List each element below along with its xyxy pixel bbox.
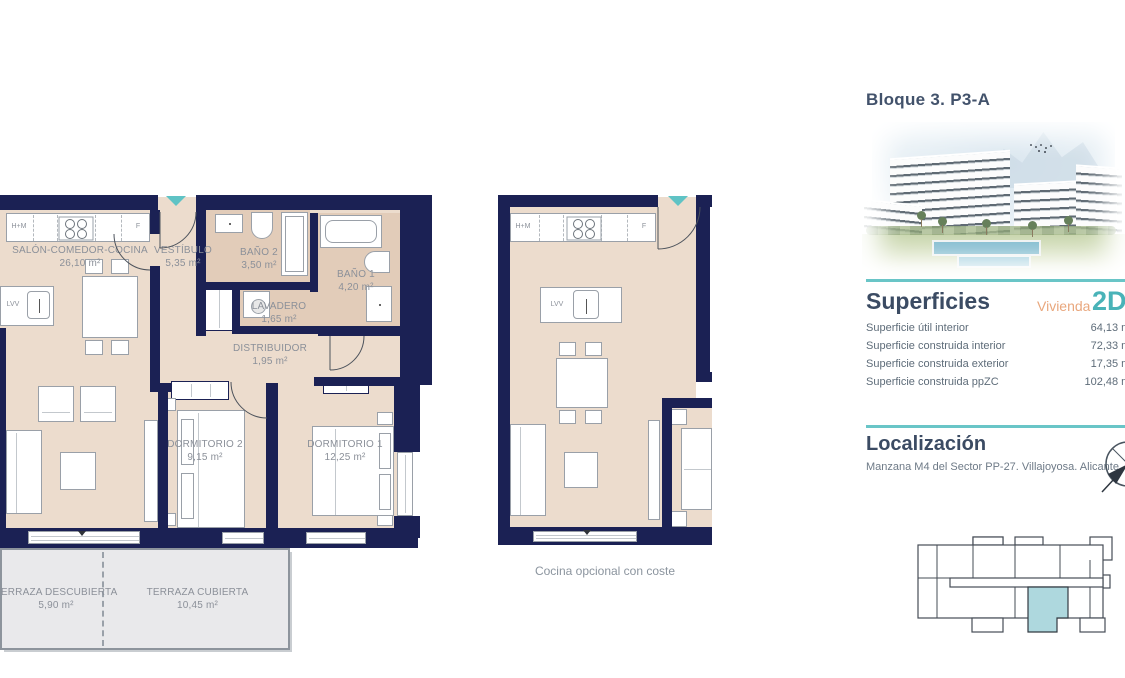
tv-unit bbox=[144, 420, 158, 522]
superficie-label: Superficie construida interior bbox=[866, 340, 1005, 352]
wall bbox=[158, 383, 172, 392]
superficie-label: Superficie útil interior bbox=[866, 322, 969, 334]
room-area: 26,10 m² bbox=[8, 257, 152, 270]
superficie-value: 72,33 m² bbox=[1091, 340, 1125, 352]
basin-drain bbox=[229, 223, 231, 225]
room-area: 1,95 m² bbox=[218, 355, 322, 368]
room-area: 9,15 m² bbox=[162, 451, 248, 464]
wardrobe bbox=[171, 381, 229, 400]
superficie-label: Superficie construida ppZC bbox=[866, 376, 999, 388]
superficie-value: 64,13 m² bbox=[1091, 322, 1125, 334]
pillow bbox=[181, 473, 194, 519]
wardrobe-line bbox=[191, 384, 192, 397]
door-marker-icon bbox=[583, 530, 591, 535]
room-name: DISTRIBUIDOR bbox=[218, 342, 322, 355]
window bbox=[306, 532, 366, 544]
island-label-lvv: LVV bbox=[546, 301, 568, 308]
room-name: BAÑO 1 bbox=[322, 268, 390, 281]
kitchen-label-f: F bbox=[636, 223, 652, 230]
wall bbox=[266, 383, 278, 528]
bed-fold-line bbox=[198, 413, 199, 527]
wall bbox=[662, 398, 712, 408]
bed-fold-line bbox=[684, 469, 711, 470]
superficies-row: Superficie construida ppZC102,48 m² bbox=[866, 376, 1125, 388]
pillow bbox=[379, 474, 391, 510]
coffee-table bbox=[564, 452, 598, 488]
wall bbox=[150, 210, 160, 234]
glass-line bbox=[536, 538, 636, 539]
glass-line bbox=[536, 535, 636, 536]
wall bbox=[498, 195, 658, 207]
chair bbox=[559, 342, 576, 356]
address-text: Manzana M4 del Sector PP-27. Villajoyosa… bbox=[866, 461, 1119, 473]
section-divider bbox=[866, 279, 1125, 282]
wall bbox=[232, 326, 320, 334]
site-plan bbox=[913, 535, 1125, 647]
room-label-terraza-cubierta: TERRAZA CUBIERTA10,45 m² bbox=[135, 586, 260, 612]
toilet-icon bbox=[251, 212, 273, 239]
building-rendering bbox=[862, 116, 1125, 278]
window bbox=[397, 452, 413, 516]
room-label-vestibulo: VESTÍBULO5,35 m² bbox=[147, 244, 219, 270]
room-label-dormitorio1: DORMITORIO 112,25 m² bbox=[300, 438, 390, 464]
superficie-value: 102,48 m² bbox=[1084, 376, 1125, 388]
wall bbox=[196, 210, 206, 336]
counter-divider bbox=[33, 215, 34, 241]
room-label-bano2: BAÑO 23,50 m² bbox=[224, 246, 294, 272]
bathtub-inner bbox=[325, 220, 377, 243]
kitchen-label-f: F bbox=[130, 223, 146, 230]
room-name: SALÓN-COMEDOR-COCINA bbox=[8, 244, 152, 257]
wall bbox=[314, 377, 402, 386]
window-line bbox=[405, 455, 406, 513]
superficie-label: Superficie construida exterior bbox=[866, 358, 1008, 370]
room-label-distribuidor: DISTRIBUIDOR1,95 m² bbox=[218, 342, 322, 368]
armchair bbox=[80, 386, 116, 422]
counter-divider bbox=[627, 215, 628, 241]
closet bbox=[205, 284, 234, 331]
wall bbox=[400, 210, 432, 385]
chair bbox=[85, 340, 103, 355]
sink-tap bbox=[39, 299, 40, 313]
cooktop-icon bbox=[58, 216, 94, 241]
room-area: 1,65 m² bbox=[240, 313, 318, 326]
wall bbox=[696, 372, 712, 382]
entry-arrow-icon bbox=[668, 196, 688, 206]
tv-unit bbox=[648, 420, 660, 520]
localizacion-heading: Localización bbox=[866, 433, 986, 456]
superficies-heading: Superficies bbox=[866, 288, 990, 315]
wall bbox=[662, 408, 672, 529]
counter-divider bbox=[563, 215, 564, 241]
sink-icon bbox=[27, 291, 50, 319]
room-area: 5,35 m² bbox=[147, 257, 219, 270]
counter-divider bbox=[539, 215, 540, 241]
wall bbox=[318, 326, 402, 336]
superficies-row: Superficie construida interior72,33 m² bbox=[866, 340, 1125, 352]
room-name: BAÑO 2 bbox=[224, 246, 294, 259]
vivienda-type: 2D bbox=[1092, 286, 1125, 317]
superficies-row: Superficie construida exterior17,35 m² bbox=[866, 358, 1125, 370]
room-label-salon: SALÓN-COMEDOR-COCINA26,10 m² bbox=[8, 244, 152, 270]
wardrobe-line bbox=[210, 384, 211, 397]
chair bbox=[111, 340, 129, 355]
wall bbox=[394, 385, 420, 452]
wall bbox=[696, 195, 712, 207]
watercolor-fade bbox=[862, 116, 1125, 278]
dining-table bbox=[82, 276, 138, 338]
section-divider bbox=[866, 425, 1125, 428]
wall bbox=[696, 207, 710, 372]
wall bbox=[0, 195, 158, 210]
vivienda-label: Vivienda bbox=[1037, 298, 1090, 314]
room-name: VESTÍBULO bbox=[147, 244, 219, 257]
chair bbox=[559, 410, 576, 424]
block-title: Bloque 3. P3-A bbox=[866, 90, 990, 110]
wall bbox=[196, 195, 432, 210]
wall bbox=[498, 195, 510, 545]
room-label-terraza-descubierta: TERRAZA DESCUBIERTA5,90 m² bbox=[0, 586, 126, 612]
glass-line bbox=[309, 538, 365, 539]
glass-line bbox=[225, 538, 263, 539]
room-name: LAVADERO bbox=[240, 300, 318, 313]
room-area: 12,25 m² bbox=[300, 451, 390, 464]
compass-icon bbox=[1096, 436, 1125, 498]
highlighted-unit bbox=[1028, 587, 1068, 632]
kitchen-label-hm: H+M bbox=[510, 223, 536, 230]
kitchen-label-hm: H+M bbox=[6, 223, 32, 230]
room-label-bano1: BAÑO 14,20 m² bbox=[322, 268, 390, 294]
dining-table bbox=[556, 358, 608, 408]
basin-drain bbox=[379, 304, 381, 306]
sofa-line bbox=[520, 427, 521, 515]
sink-icon bbox=[573, 290, 599, 319]
entry-arrow-icon bbox=[166, 196, 186, 206]
washbasin-icon bbox=[215, 214, 243, 233]
sink-tap bbox=[586, 299, 587, 314]
cooktop-icon bbox=[566, 216, 602, 241]
armchair-line bbox=[42, 412, 70, 413]
armchair bbox=[38, 386, 74, 422]
room-area: 3,50 m² bbox=[224, 259, 294, 272]
plan-caption: Cocina opcional con coste bbox=[505, 564, 705, 578]
nightstand bbox=[377, 412, 393, 425]
bathtub-icon bbox=[320, 215, 382, 248]
superficies-row: Superficie útil interior64,13 m² bbox=[866, 322, 1125, 334]
glass-line bbox=[31, 536, 139, 537]
closet-line bbox=[219, 287, 220, 328]
bed-dormitorio-2 bbox=[177, 410, 245, 528]
sofa bbox=[6, 430, 42, 514]
room-area: 4,20 m² bbox=[322, 281, 390, 294]
counter-divider bbox=[121, 215, 122, 241]
door-marker-icon bbox=[78, 531, 86, 536]
superficie-value: 17,35 m² bbox=[1091, 358, 1125, 370]
chair bbox=[585, 410, 602, 424]
armchair-line bbox=[84, 412, 112, 413]
coffee-table bbox=[60, 452, 96, 490]
room-name: TERRAZA DESCUBIERTA bbox=[0, 586, 126, 599]
room-label-lavadero: LAVADERO1,65 m² bbox=[240, 300, 318, 326]
room-area: 10,45 m² bbox=[135, 599, 260, 612]
wall bbox=[310, 213, 318, 292]
room-name: TERRAZA CUBIERTA bbox=[135, 586, 260, 599]
sofa bbox=[510, 424, 546, 516]
room-name: DORMITORIO 1 bbox=[300, 438, 390, 451]
glass-line bbox=[31, 540, 139, 541]
room-label-dormitorio2: DORMITORIO 29,15 m² bbox=[162, 438, 248, 464]
counter-divider bbox=[95, 215, 96, 241]
room-name: DORMITORIO 2 bbox=[162, 438, 248, 451]
wall bbox=[196, 282, 318, 290]
wall bbox=[150, 266, 160, 392]
bed-partial bbox=[681, 428, 712, 510]
wall bbox=[0, 328, 6, 528]
island-label-lvv: LVV bbox=[2, 301, 24, 308]
sofa-line bbox=[16, 433, 17, 513]
room-area: 5,90 m² bbox=[0, 599, 126, 612]
window bbox=[222, 532, 264, 544]
chair bbox=[585, 342, 602, 356]
